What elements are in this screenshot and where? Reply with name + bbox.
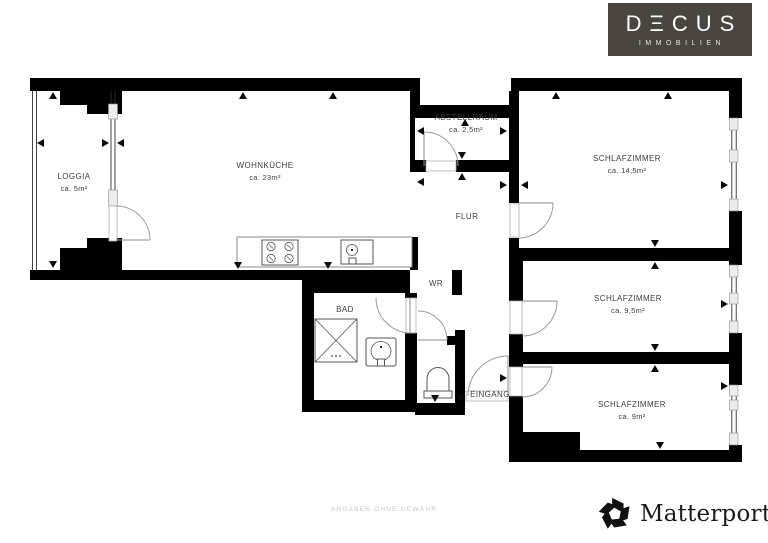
door-loggia [116,206,150,240]
room-area-loggia: ca. 5m² [60,184,87,193]
room-label-loggia: LOGGIA [57,172,90,181]
room-area-wohnkueche: ca. 23m² [249,173,281,182]
door-schlafzimmer-2 [522,301,557,336]
washbasin-icon [366,338,396,366]
matterport-logo: Matterport ® [596,494,768,534]
room-label-schlafzimmer-3: SCHLAFZIMMER [598,400,666,409]
room-label-wr: WR [429,279,443,288]
room-label-abstellraum: ABSTELLRAUM [434,113,497,122]
room-area-schlafzimmer-1: ca. 14,5m² [608,166,647,175]
shower-icon [315,319,357,362]
door-wr [418,311,447,340]
room-label-schlafzimmer-2: SCHLAFZIMMER [594,294,662,303]
matterport-pinwheel-icon [596,494,634,534]
floorplan-drawing: LOGGIA ca. 5m² WOHNKÜCHE ca. 23m² ABSTEL… [0,0,768,543]
kitchen-sink-icon [341,240,373,264]
room-area-schlafzimmer-2: ca. 9,5m² [611,306,645,315]
windows [33,91,739,445]
matterport-wordmark: Matterport [640,501,768,527]
room-area-schlafzimmer-3: ca. 9m² [618,412,645,421]
room-label-schlafzimmer-1: SCHLAFZIMMER [593,154,661,163]
fixtures [237,237,452,398]
room-label-wohnkueche: WOHNKÜCHE [237,161,294,170]
room-label-bad: BAD [336,305,354,314]
room-label-flur: FLUR [456,212,479,221]
door-schlafzimmer-1 [519,203,553,238]
floorplan-page: DΞCUS IMMOBILIEN [0,0,768,543]
room-area-abstellraum: ca. 2,5m² [449,125,483,134]
toilet-icon [424,368,452,398]
door-schlafzimmer-3 [522,367,552,397]
room-label-eingang: EINGANG [470,390,510,399]
stove-icon [262,240,298,265]
